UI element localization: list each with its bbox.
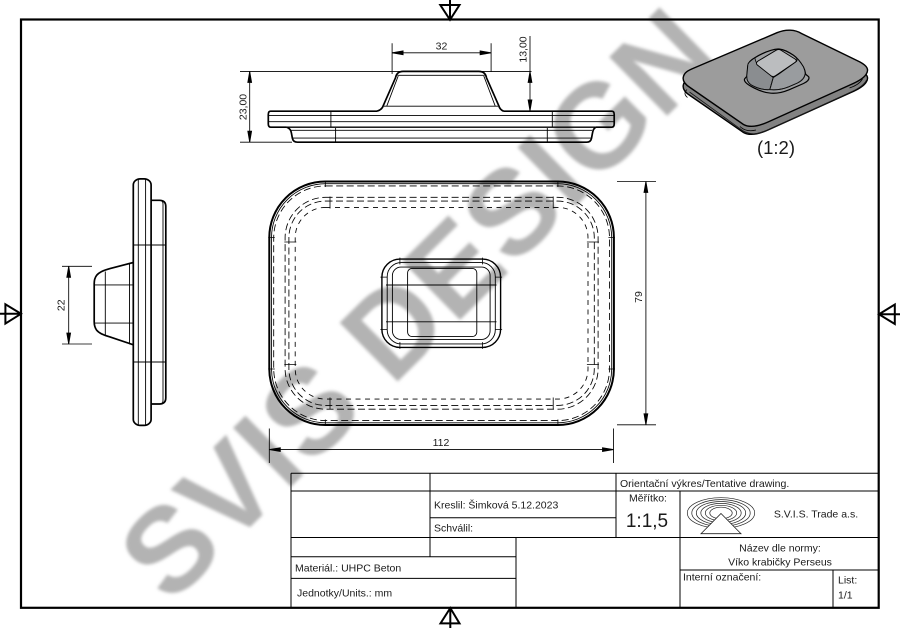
- svg-text:32: 32: [436, 41, 448, 53]
- svg-text:Víko krabičky Perseus: Víko krabičky Perseus: [728, 556, 832, 568]
- svg-text:Orientační výkres/Tentative dr: Orientační výkres/Tentative drawing.: [620, 478, 789, 490]
- svg-text:79: 79: [633, 291, 645, 303]
- svg-text:Měřítko:: Měřítko:: [629, 493, 667, 505]
- svg-text:112: 112: [433, 437, 450, 449]
- svg-text:23,00: 23,00: [238, 94, 250, 120]
- svg-text:S.V.I.S. Trade a.s.: S.V.I.S. Trade a.s.: [774, 509, 858, 521]
- svg-text:Materiál.: UHPC Beton: Materiál.: UHPC Beton: [295, 563, 401, 575]
- svg-text:Kreslil: Šimková 5.12.2023: Kreslil: Šimková 5.12.2023: [434, 499, 558, 512]
- svg-text:1:1,5: 1:1,5: [626, 511, 668, 532]
- svg-text:Název dle normy:: Název dle normy:: [739, 542, 821, 554]
- svg-text:Interní označení:: Interní označení:: [683, 572, 761, 584]
- svg-text:(1:2): (1:2): [757, 137, 795, 158]
- svg-text:1/1: 1/1: [838, 590, 853, 602]
- svg-text:List:: List:: [838, 575, 857, 587]
- svg-text:Schválil:: Schválil:: [434, 523, 473, 535]
- svg-text:Jednotky/Units.: mm: Jednotky/Units.: mm: [297, 588, 392, 600]
- svg-text:13,00: 13,00: [518, 36, 530, 62]
- svg-text:22: 22: [56, 299, 68, 311]
